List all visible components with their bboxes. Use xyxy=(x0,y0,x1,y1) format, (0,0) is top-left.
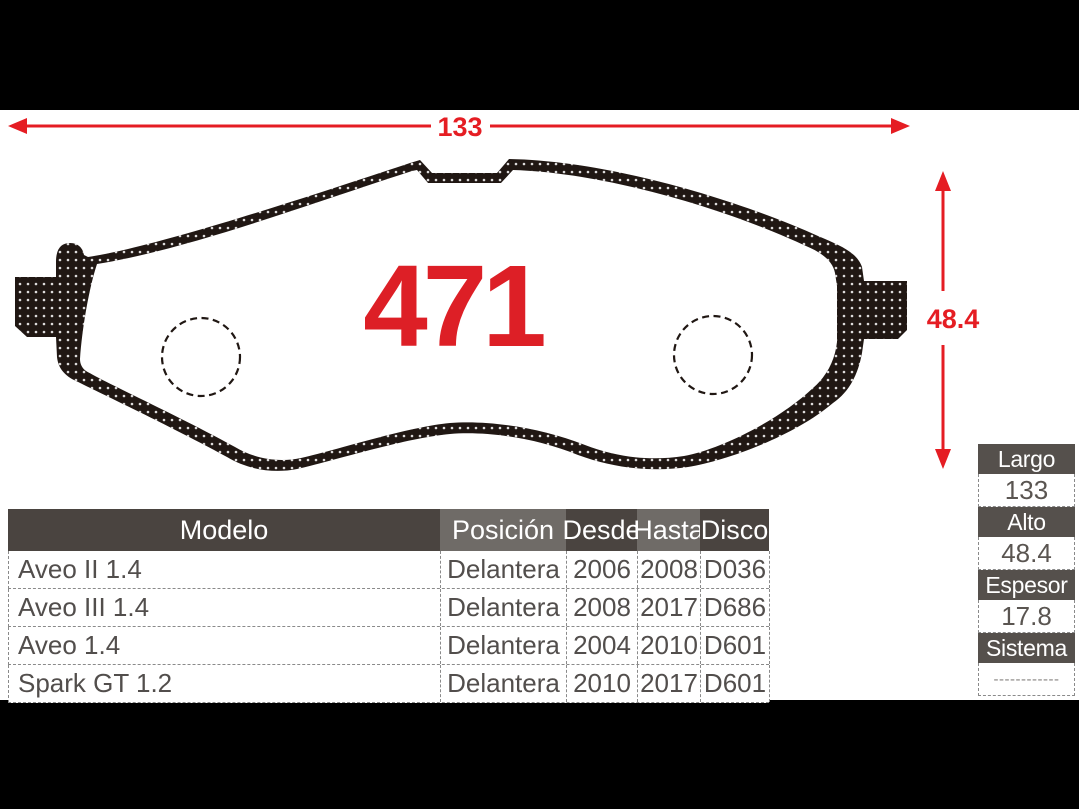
height-dimension-label: 48.4 xyxy=(927,304,980,334)
top-letterbox-bar xyxy=(0,0,1079,110)
cell-desde: 2008 xyxy=(567,589,638,626)
cell-modelo: Aveo II 1.4 xyxy=(9,551,441,588)
fitment-table: Modelo Posición Desde Hasta Disco Aveo I… xyxy=(8,509,769,703)
cell-posicion: Delantera xyxy=(441,627,567,664)
cell-modelo: Aveo 1.4 xyxy=(9,627,441,664)
header-desde: Desde xyxy=(566,509,637,551)
header-posicion: Posición xyxy=(440,509,566,551)
cell-disco: D601 xyxy=(701,627,770,664)
table-row: Spark GT 1.2 Delantera 2010 2017 D601 xyxy=(8,665,769,703)
cell-posicion: Delantera xyxy=(441,665,567,702)
cell-desde: 2010 xyxy=(567,665,638,702)
cell-desde: 2006 xyxy=(567,551,638,588)
cell-desde: 2004 xyxy=(567,627,638,664)
datasheet-page: 133 48.4 471 Modelo Posición Desde Hasta… xyxy=(0,0,1079,809)
spec-value-sistema: ------------ xyxy=(978,663,1075,696)
header-disco: Disco xyxy=(700,509,769,551)
fitment-table-header: Modelo Posición Desde Hasta Disco xyxy=(8,509,769,551)
table-row: Aveo II 1.4 Delantera 2006 2008 D036 xyxy=(8,551,769,589)
spec-value-espesor: 17.8 xyxy=(978,600,1075,633)
cell-hasta: 2008 xyxy=(638,551,701,588)
bottom-letterbox-bar xyxy=(0,700,1079,809)
width-dimension-label: 133 xyxy=(437,112,482,142)
right-mounting-hole-circle xyxy=(674,316,752,394)
spec-header-largo: Largo xyxy=(978,444,1075,474)
cell-hasta: 2010 xyxy=(638,627,701,664)
cell-modelo: Aveo III 1.4 xyxy=(9,589,441,626)
spec-header-sistema: Sistema xyxy=(978,633,1075,663)
spec-header-alto: Alto xyxy=(978,507,1075,537)
table-row: Aveo III 1.4 Delantera 2008 2017 D686 xyxy=(8,589,769,627)
height-arrowhead-bottom xyxy=(935,449,951,469)
table-row: Aveo 1.4 Delantera 2004 2010 D601 xyxy=(8,627,769,665)
width-arrowhead-left xyxy=(8,118,27,134)
spec-value-largo: 133 xyxy=(978,474,1075,507)
spec-header-espesor: Espesor xyxy=(978,570,1075,600)
width-arrowhead-right xyxy=(891,118,910,134)
header-hasta: Hasta xyxy=(637,509,700,551)
cell-disco: D036 xyxy=(701,551,770,588)
left-mounting-hole-circle xyxy=(162,318,240,396)
specs-table: Largo 133 Alto 48.4 Espesor 17.8 Sistema… xyxy=(978,444,1075,696)
cell-modelo: Spark GT 1.2 xyxy=(9,665,441,702)
spec-value-alto: 48.4 xyxy=(978,537,1075,570)
cell-posicion: Delantera xyxy=(441,551,567,588)
cell-posicion: Delantera xyxy=(441,589,567,626)
header-modelo: Modelo xyxy=(8,509,440,551)
content-area: 133 48.4 471 Modelo Posición Desde Hasta… xyxy=(0,110,1079,700)
height-arrowhead-top xyxy=(935,171,951,191)
cell-disco: D601 xyxy=(701,665,770,702)
cell-hasta: 2017 xyxy=(638,665,701,702)
cell-hasta: 2017 xyxy=(638,589,701,626)
cell-disco: D686 xyxy=(701,589,770,626)
part-number: 471 xyxy=(360,248,545,364)
